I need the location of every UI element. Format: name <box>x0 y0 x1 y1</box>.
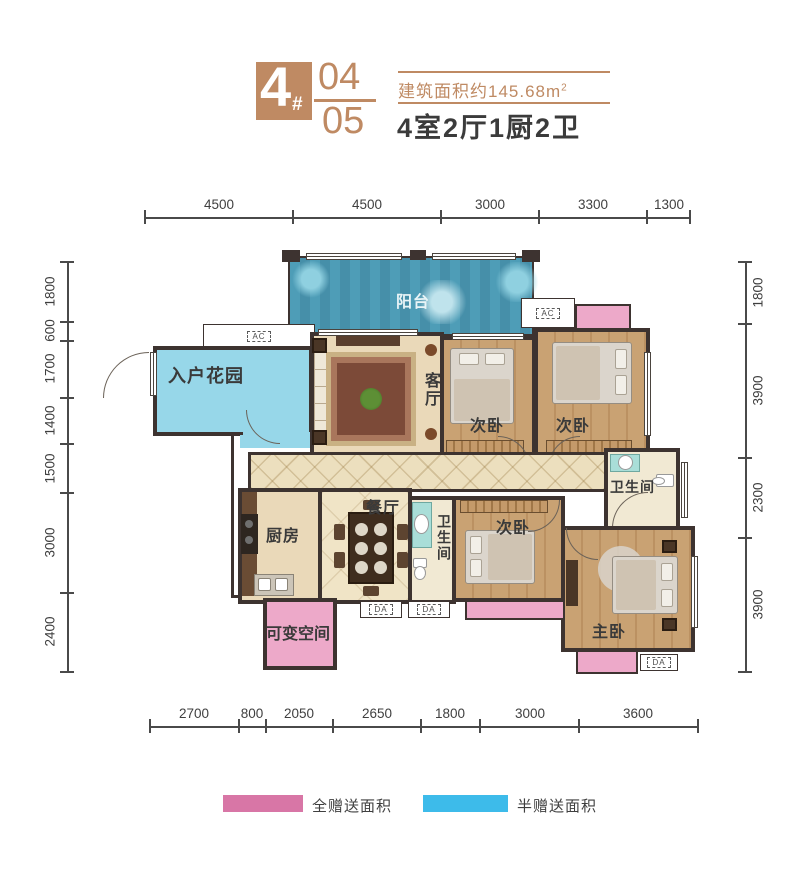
da-unit-label: DA <box>647 657 670 668</box>
dim-tick <box>149 719 151 733</box>
wall-pillar <box>410 250 426 260</box>
room-label-bedroom-mid: 次卧 <box>496 514 530 538</box>
room-label-bathroom-mid: 卫生间 <box>434 514 454 580</box>
room-label-dining: 餐厅 <box>366 494 400 518</box>
dimension-line-bottom <box>150 726 698 728</box>
dim-tick <box>440 210 442 224</box>
dim-tick <box>689 210 691 224</box>
room-label-master: 主卧 <box>592 618 626 642</box>
exterior-wall <box>231 432 234 598</box>
area-superscript: 2 <box>561 82 568 93</box>
ac-unit-box: AC <box>521 298 575 328</box>
legend-swatch-half-gift <box>423 795 508 812</box>
room-label-balcony: 阳台 <box>396 288 430 312</box>
dim-label-left: 3000 <box>43 515 58 571</box>
dim-tick <box>738 671 752 673</box>
header-rule-bottom <box>398 102 610 104</box>
window <box>452 333 524 340</box>
decor-knob <box>425 428 437 440</box>
stove-burner <box>245 536 253 544</box>
nightstand <box>662 618 677 631</box>
dim-label-bottom: 2700 <box>164 706 224 721</box>
dim-label-top: 4500 <box>189 197 249 212</box>
dining-table <box>348 512 394 584</box>
unit-number-bottom: 05 <box>322 100 364 143</box>
dim-tick <box>332 719 334 733</box>
dim-tick <box>60 261 74 263</box>
master-tv-cabinet <box>566 560 578 606</box>
room-label-bedroom-top-right: 次卧 <box>556 412 590 436</box>
area-text: 建筑面积约145.68m2 <box>398 77 568 102</box>
dim-tick <box>144 210 146 224</box>
da-unit-box: DA <box>360 601 402 618</box>
block-number: 4 <box>260 54 291 119</box>
dim-label-top: 3300 <box>563 197 623 212</box>
dim-label-right: 3900 <box>751 577 766 633</box>
ac-unit-label: AC <box>247 331 270 342</box>
plant-icon <box>360 388 382 410</box>
block-suffix: # <box>292 94 303 116</box>
bed <box>552 342 632 404</box>
dim-tick <box>697 719 699 733</box>
window <box>432 253 516 260</box>
window <box>691 556 698 628</box>
room-label-living: 客厅 <box>418 372 442 422</box>
dim-tick <box>738 457 752 459</box>
dim-tick <box>292 210 294 224</box>
dim-tick <box>60 321 74 323</box>
wall-pillar <box>522 250 540 262</box>
dim-tick <box>578 719 580 733</box>
dim-tick <box>646 210 648 224</box>
dim-tick <box>60 340 74 342</box>
exterior-wall <box>153 432 243 435</box>
dim-tick <box>60 492 74 494</box>
room-label-kitchen: 厨房 <box>266 522 300 546</box>
bed <box>612 556 678 614</box>
bed <box>465 530 535 584</box>
dim-label-right: 2300 <box>751 470 766 526</box>
da-unit-label: DA <box>417 604 440 615</box>
dim-label-bottom: 2650 <box>347 706 407 721</box>
decor-pillar <box>312 338 327 353</box>
window <box>644 352 651 436</box>
window <box>306 253 402 260</box>
dim-label-top: 4500 <box>337 197 397 212</box>
room-label-bedroom-top-left: 次卧 <box>470 412 504 436</box>
dim-label-bottom: 3600 <box>608 706 668 721</box>
dim-tick <box>479 719 481 733</box>
dim-label-bottom: 3000 <box>500 706 560 721</box>
dining-chair <box>363 586 379 596</box>
dim-tick <box>238 719 240 733</box>
gift-area-bay-window <box>576 650 638 674</box>
header-rule-top <box>398 71 610 73</box>
dim-tick <box>538 210 540 224</box>
dim-tick <box>738 537 752 539</box>
dim-label-bottom: 1800 <box>420 706 480 721</box>
kitchen-sink-basin <box>275 578 288 591</box>
dim-label-top: 3000 <box>460 197 520 212</box>
decor-pillar <box>312 430 327 445</box>
dim-label-right: 3900 <box>751 363 766 419</box>
dining-chair <box>334 524 345 540</box>
dining-chair <box>397 524 408 540</box>
gift-area-bay-window <box>465 600 565 620</box>
dim-tick <box>60 443 74 445</box>
da-unit-label: DA <box>369 604 392 615</box>
legend-swatch-full-gift <box>223 795 303 812</box>
plant-decor-icon <box>494 262 540 302</box>
room-label-bathroom-right: 卫生间 <box>610 477 655 497</box>
room-label-entry-garden: 入户花园 <box>168 362 244 388</box>
decor-knob <box>425 344 437 356</box>
stove-burner <box>245 520 253 528</box>
sink-icon <box>618 455 633 470</box>
nightstand <box>662 540 677 553</box>
plant-decor-icon <box>292 260 330 298</box>
dim-tick <box>265 719 267 733</box>
dim-tick <box>60 671 74 673</box>
legend-label-half-gift: 半赠送面积 <box>517 795 597 816</box>
dim-tick <box>738 261 752 263</box>
dimension-line-left <box>67 262 69 672</box>
entry-door-gap <box>150 352 157 396</box>
dimension-line-top <box>145 217 690 219</box>
block-badge: 4 # <box>256 62 312 120</box>
dim-label-left: 1500 <box>43 441 58 497</box>
window <box>318 329 418 336</box>
dim-tick <box>420 719 422 733</box>
gift-area-bay-window <box>575 304 631 330</box>
dim-tick <box>60 592 74 594</box>
kitchen-sink-basin <box>258 578 271 591</box>
ac-unit-label: AC <box>536 308 559 319</box>
toilet-icon <box>414 566 426 580</box>
da-unit-box: DA <box>408 601 450 618</box>
dim-label-left: 2400 <box>43 604 58 660</box>
ac-unit-box: AC <box>203 324 315 348</box>
dim-label-bottom: 2050 <box>269 706 329 721</box>
dining-chair <box>334 552 345 568</box>
unit-number-top: 04 <box>318 56 360 99</box>
door-arc <box>103 352 149 398</box>
dim-label-right: 1800 <box>751 265 766 321</box>
sink-icon <box>414 514 429 534</box>
legend-label-full-gift: 全赠送面积 <box>312 795 392 816</box>
dim-label-top: 1300 <box>639 197 699 212</box>
window <box>681 462 688 518</box>
dim-label-left: 1700 <box>43 341 58 397</box>
da-unit-box: DA <box>640 654 678 671</box>
dim-tick <box>738 323 752 325</box>
dim-tick <box>60 397 74 399</box>
tv-cabinet <box>336 336 400 346</box>
hallway <box>248 452 608 492</box>
wall-pillar <box>282 250 300 262</box>
dining-chair <box>397 552 408 568</box>
room-label-flex-space: 可变空间 <box>266 620 330 644</box>
layout-summary: 4室2厅1厨2卫 <box>397 106 581 145</box>
room-entry-garden <box>153 346 313 436</box>
